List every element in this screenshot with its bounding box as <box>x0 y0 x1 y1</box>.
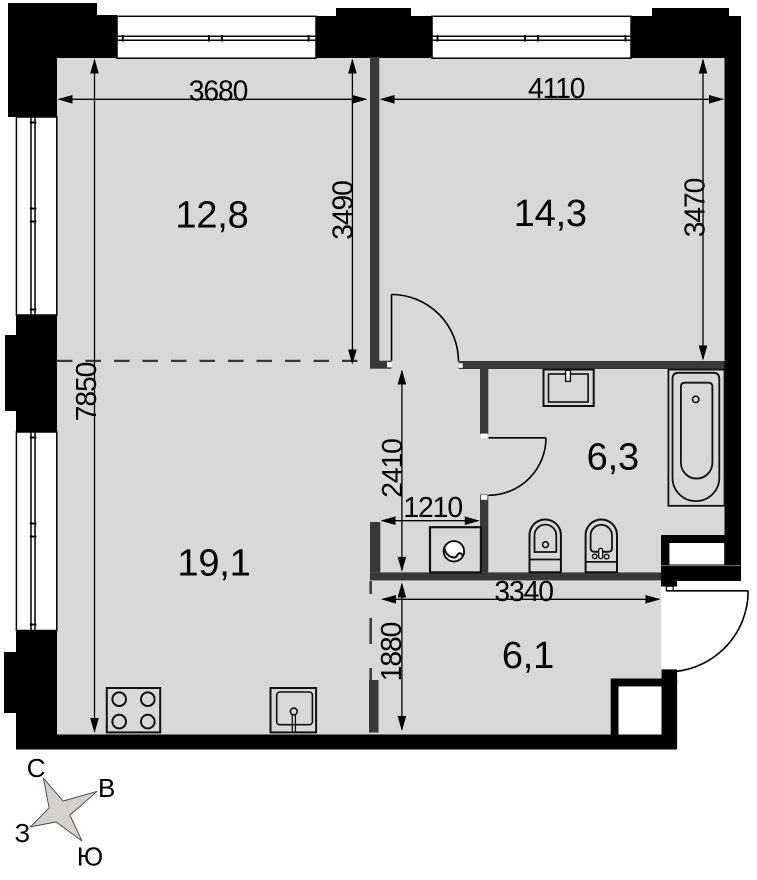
svg-text:Ю: Ю <box>77 841 103 871</box>
svg-text:3680: 3680 <box>189 75 248 107</box>
svg-text:12,8: 12,8 <box>175 195 248 237</box>
svg-text:3470: 3470 <box>679 178 711 237</box>
svg-text:14,3: 14,3 <box>514 193 587 235</box>
svg-text:З: З <box>15 818 31 848</box>
svg-text:3490: 3490 <box>326 181 358 240</box>
svg-text:19,1: 19,1 <box>177 542 250 584</box>
svg-text:3340: 3340 <box>494 575 553 607</box>
svg-text:6,1: 6,1 <box>502 635 554 677</box>
svg-text:7850: 7850 <box>70 362 102 421</box>
svg-text:В: В <box>98 773 115 803</box>
svg-text:С: С <box>27 753 46 783</box>
svg-text:6,3: 6,3 <box>587 437 639 479</box>
svg-text:1210: 1210 <box>403 491 462 523</box>
svg-text:2410: 2410 <box>376 439 408 498</box>
svg-text:1880: 1880 <box>375 622 407 681</box>
svg-text:4110: 4110 <box>528 72 585 104</box>
